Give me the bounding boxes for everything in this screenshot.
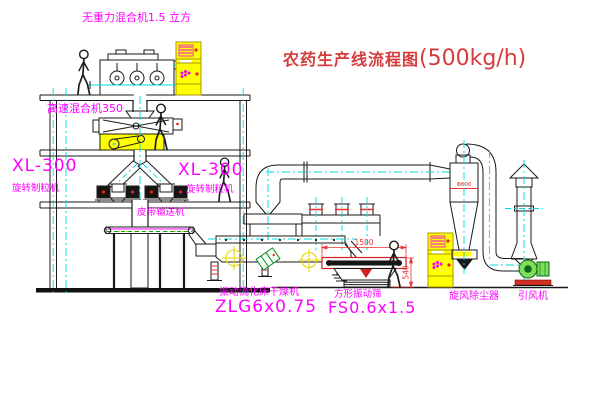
label-xl300-left: XL-300: [12, 158, 77, 175]
label-highspeed-mixer: 高速混合机350: [47, 103, 123, 114]
dim-sieve-height: 540: [402, 265, 411, 280]
label-belt-conveyor: 皮带输送机: [137, 208, 185, 218]
label-granulator-left: 旋转制粒机: [12, 184, 60, 194]
label-granulator-right: 旋转制粒机: [186, 185, 234, 195]
worker-figure-1: [78, 50, 90, 94]
label-xl300-right: XL-300: [178, 162, 243, 179]
dim-sieve-length: 1500: [354, 238, 373, 247]
cad-process-flow-diagram: 1500 540 Φ600: [0, 0, 600, 403]
exhaust-duct: [256, 162, 452, 244]
label-fan: 引风机: [518, 292, 548, 302]
label-sieve-model: FS0.6x1.5: [328, 300, 416, 316]
granulator-left: [95, 184, 141, 203]
high-speed-mixer: [93, 111, 182, 150]
control-cabinet-ground: [428, 233, 453, 287]
title-capacity: (500kg/h): [419, 46, 526, 71]
title-text: 农药生产线流程图: [283, 50, 419, 69]
vibrating-sieve: 1500 540: [322, 238, 414, 287]
control-cabinet-top: [176, 42, 201, 95]
label-cyclone: 旋风除尘器: [449, 292, 499, 302]
label-gravity-mixer: 无重力混合机1.5 立方: [82, 12, 191, 23]
belt-conveyor: [104, 227, 216, 288]
cyclone-dust-collector: Φ600: [450, 140, 523, 274]
diagram-title: 农药生产线流程图(500kg/h): [283, 46, 526, 71]
granulator-right: [143, 184, 189, 203]
induced-draft-fan: [513, 260, 553, 286]
label-dryer-model: ZLG6x0.75: [215, 299, 317, 316]
